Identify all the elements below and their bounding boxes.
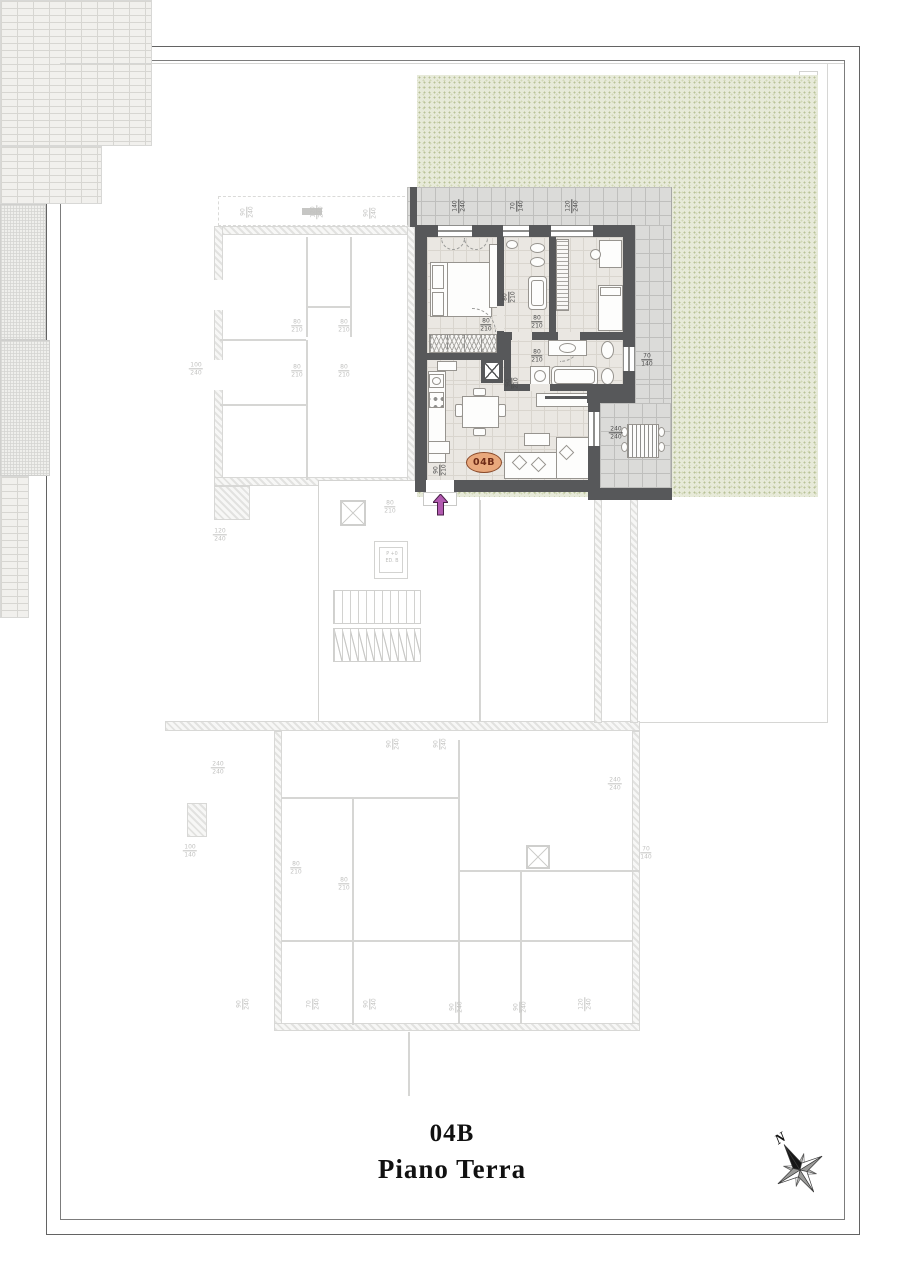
- dimension-label: 70140: [641, 352, 652, 367]
- dimension-label: 80210: [501, 291, 516, 302]
- dimension-label: 70140: [509, 200, 524, 211]
- terrace-wall: [588, 488, 672, 500]
- compass-rose-icon: N: [750, 1120, 850, 1220]
- dimension-label: 90210: [504, 377, 519, 388]
- dimension-label: 80210: [480, 317, 491, 332]
- dimension-label: 80210: [531, 348, 542, 363]
- dimension-label: 120240: [213, 527, 227, 542]
- exterior-wall: [415, 225, 427, 492]
- door-opening: [530, 384, 550, 391]
- dimension-label: 100140: [183, 843, 197, 858]
- elevator-label-line1: P +0: [379, 551, 405, 558]
- door-opening: [512, 332, 532, 340]
- window: [623, 347, 635, 371]
- dimension-label: 120240: [577, 997, 592, 1011]
- dimension-label: 80210: [290, 860, 301, 875]
- dimension-label: 90240: [235, 998, 250, 1009]
- wall-layer: [0, 0, 904, 1280]
- dimension-label: 120240: [309, 205, 324, 219]
- floor-plan-sheet: 04B P +0 ED. B 1402407014012024080210802…: [0, 0, 904, 1280]
- terrace-door: [588, 412, 600, 446]
- window: [551, 225, 593, 237]
- window: [503, 225, 529, 237]
- dimension-label: 80210: [291, 363, 302, 378]
- door-opening: [497, 306, 504, 331]
- entrance-arrow-icon: [433, 494, 448, 516]
- dimension-label: 240240: [211, 760, 225, 775]
- dimension-label: 80210: [384, 499, 395, 514]
- terrace-post: [410, 187, 417, 227]
- dimension-label: 80210: [338, 318, 349, 333]
- dimension-label: 70140: [640, 845, 651, 860]
- dimension-label: 80210: [531, 314, 542, 329]
- compass-north-letter: N: [772, 1130, 790, 1149]
- dimension-label: 90210: [432, 464, 447, 475]
- elevator-label: P +0 ED. B: [379, 551, 405, 565]
- dimension-label: 240240: [609, 425, 623, 440]
- elevator-label-line2: ED. B: [379, 558, 405, 565]
- dimension-label: 70240: [305, 998, 320, 1009]
- unit-badge: 04B: [466, 452, 502, 473]
- window: [438, 225, 472, 237]
- exterior-wall: [587, 384, 635, 403]
- dimension-label: 120240: [564, 199, 579, 213]
- dimension-label: 80210: [291, 318, 302, 333]
- dimension-label: 90240: [239, 206, 254, 217]
- dimension-label: 90240: [512, 1001, 527, 1012]
- entrance-opening: [426, 480, 454, 492]
- shaft-cavedio: [481, 359, 503, 383]
- dimension-label: 90240: [448, 1001, 463, 1012]
- dimension-label: 100240: [189, 361, 203, 376]
- dimension-label: 80210: [338, 363, 349, 378]
- dimension-label: 90240: [385, 738, 400, 749]
- dimension-label: 240240: [608, 776, 622, 791]
- dimension-label: 80210: [338, 876, 349, 891]
- door-opening: [558, 332, 580, 340]
- dimension-label: 90240: [362, 998, 377, 1009]
- interior-wall: [549, 237, 556, 332]
- dimension-label: 140240: [451, 199, 466, 213]
- dimension-label: 90240: [432, 738, 447, 749]
- dimension-label: 90240: [362, 207, 377, 218]
- unit-badge-label: 04B: [473, 457, 495, 468]
